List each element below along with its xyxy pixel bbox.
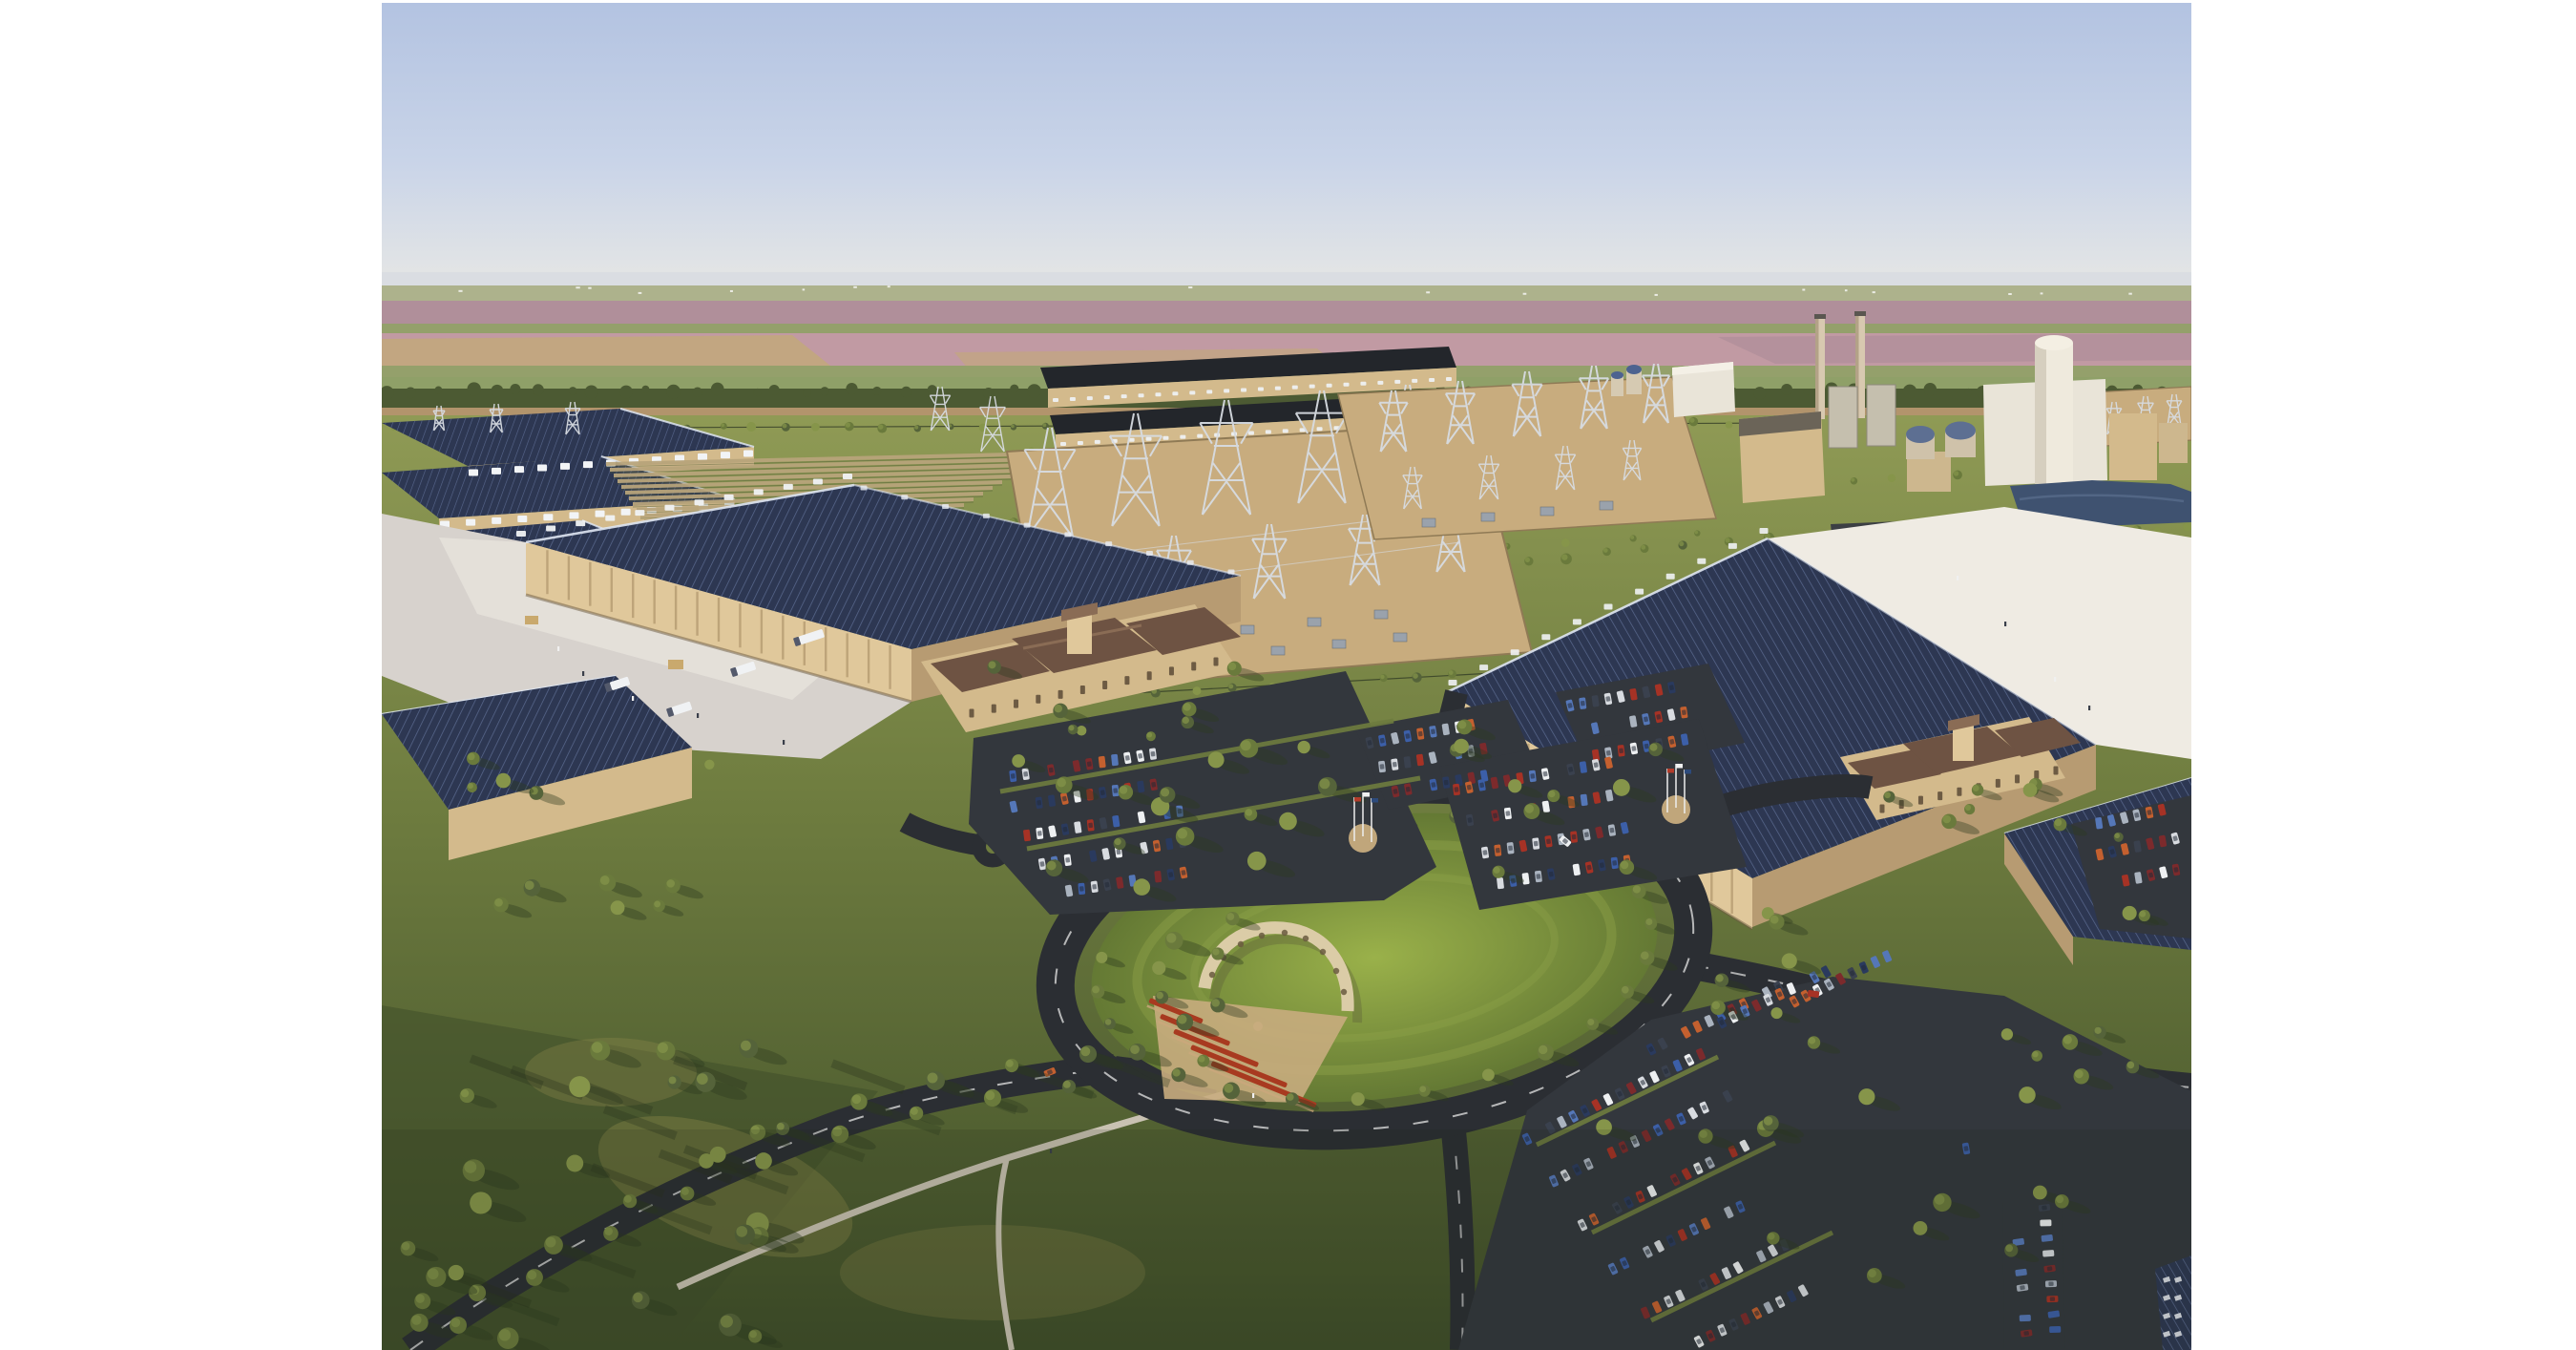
arch — [1880, 805, 1885, 813]
tree-highlight — [852, 1095, 862, 1105]
car-glass — [1049, 768, 1054, 773]
car-glass — [1168, 872, 1173, 877]
dock-trailer — [1604, 604, 1613, 610]
equipment-unit — [1172, 391, 1178, 395]
tree-highlight — [1561, 554, 1567, 559]
car-glass — [1444, 780, 1449, 786]
car-glass — [1150, 751, 1155, 757]
stack-cap — [1814, 314, 1826, 319]
tree-highlight — [1771, 1008, 1778, 1015]
car-glass — [1546, 838, 1551, 844]
arch — [992, 705, 996, 713]
car-glass — [1479, 782, 1484, 788]
treeline-tree — [666, 385, 681, 399]
car-glass — [1088, 823, 1093, 829]
equipment-unit — [1060, 442, 1066, 446]
car-glass — [1682, 709, 1686, 715]
colonnade-arch — [1259, 933, 1265, 939]
car-glass — [1023, 771, 1028, 777]
colonnade-arch — [1209, 972, 1215, 978]
boiler-structure — [1829, 387, 1857, 448]
flag — [1363, 792, 1370, 797]
rooftop-unit — [492, 517, 501, 524]
tree-highlight — [461, 1089, 469, 1097]
treeline-tree — [510, 384, 520, 394]
roof-unit — [861, 486, 868, 491]
arch — [1124, 676, 1129, 685]
tree-highlight — [1228, 663, 1236, 670]
equipment-unit — [1360, 382, 1366, 386]
car-glass — [1534, 841, 1539, 847]
dock-trailer — [784, 484, 793, 490]
tree-highlight — [1641, 545, 1645, 550]
car — [1111, 754, 1119, 767]
field-patch — [382, 335, 830, 369]
person — [2088, 706, 2090, 710]
flag — [1667, 769, 1674, 773]
person — [1957, 576, 1958, 580]
treeline-tree — [467, 382, 480, 395]
tree-highlight — [1725, 538, 1729, 542]
treeline-tree — [585, 385, 598, 398]
dock-trailer — [695, 499, 704, 505]
tree-highlight — [2021, 1087, 2030, 1097]
car-glass — [1405, 733, 1410, 739]
tree-highlight — [1042, 423, 1046, 427]
tree-highlight — [1097, 953, 1103, 960]
car-glass — [1393, 762, 1397, 768]
dock-trailer — [1728, 543, 1737, 549]
tree-highlight — [1209, 753, 1218, 762]
treeline-tree — [492, 385, 504, 397]
tree-highlight — [741, 1041, 751, 1051]
field-patch — [1718, 333, 2191, 364]
equipment-unit — [1248, 431, 1254, 434]
equipment-unit — [1266, 430, 1271, 433]
dock-trailer — [1697, 559, 1706, 564]
person — [582, 671, 584, 676]
rooftop-unit — [621, 509, 631, 516]
tree-highlight — [1055, 705, 1063, 713]
equipment-unit — [1258, 388, 1264, 391]
tree-highlight — [783, 424, 787, 429]
roof-unit — [1105, 541, 1112, 546]
treeline-tree — [380, 386, 394, 400]
treeline-tree — [1924, 383, 1937, 396]
arch — [1102, 681, 1107, 689]
distant-building — [2008, 293, 2012, 295]
tree-highlight — [1525, 558, 1530, 562]
car-glass — [1609, 828, 1614, 833]
tree-highlight — [1006, 1060, 1014, 1067]
car-glass — [1037, 831, 1042, 836]
car-glass — [1380, 738, 1385, 744]
tree-highlight — [1458, 721, 1467, 729]
tree-highlight — [1248, 853, 1259, 863]
distant-building — [639, 292, 642, 294]
equipment-unit — [1309, 385, 1315, 389]
tree-highlight — [1764, 1116, 1772, 1125]
equipment-unit — [1197, 434, 1203, 438]
rooftop-unit — [569, 512, 578, 518]
roof-unit — [1187, 560, 1194, 565]
rooftop-unit — [698, 454, 707, 460]
treeline-tree — [711, 383, 724, 396]
tower-top — [2035, 335, 2073, 350]
treeline-tree — [1781, 384, 1792, 395]
car-glass — [1606, 750, 1611, 756]
tree-highlight — [2055, 819, 2063, 827]
tree-highlight — [612, 901, 619, 909]
car-glass — [1455, 787, 1459, 792]
plant-annex — [2109, 413, 2157, 480]
tree-highlight — [914, 426, 918, 430]
distant-building — [1426, 291, 1430, 293]
car — [1154, 871, 1162, 883]
treeline-tree — [405, 388, 416, 399]
tree-highlight — [497, 774, 506, 783]
treeline-tree — [569, 387, 577, 395]
car-glass — [1116, 849, 1120, 854]
transformer — [1600, 501, 1613, 510]
tree-highlight — [1013, 755, 1020, 763]
tree-highlight — [1152, 798, 1162, 809]
tank-dome — [1906, 426, 1935, 443]
arch — [2054, 767, 2059, 775]
tree-highlight — [911, 1107, 918, 1115]
car-glass — [1467, 817, 1472, 823]
tower-shade — [2035, 343, 2046, 484]
equipment-unit — [1070, 397, 1076, 401]
tree-highlight — [1080, 1046, 1090, 1056]
colonnade-arch — [1333, 968, 1339, 974]
colonnade-arch — [1282, 930, 1288, 936]
tree-highlight — [812, 424, 817, 429]
car-glass — [1154, 843, 1159, 849]
car-glass — [1039, 861, 1044, 867]
tree-highlight — [494, 898, 503, 907]
treeline-tree — [1903, 385, 1916, 398]
tree-highlight — [1319, 778, 1330, 789]
distant-building — [1655, 294, 1658, 296]
car-glass — [1431, 782, 1435, 788]
field-band — [382, 285, 2191, 303]
rooftop-unit — [560, 463, 570, 470]
equipment-unit — [1224, 389, 1229, 392]
distant-building — [1845, 289, 1848, 291]
equipment-unit — [1344, 383, 1350, 387]
dock-trailer — [813, 478, 823, 484]
tree-highlight — [1115, 838, 1121, 845]
tree-highlight — [1011, 425, 1015, 429]
colonnade-arch — [1320, 949, 1326, 955]
tree-highlight — [1380, 675, 1384, 679]
tree-highlight — [1183, 717, 1189, 724]
roof-unit — [1228, 570, 1235, 575]
treeline-tree — [951, 389, 959, 397]
tree-highlight — [1287, 1093, 1294, 1101]
boiler-structure — [1867, 385, 1895, 446]
equipment-unit — [1121, 394, 1127, 398]
car-glass — [1584, 832, 1589, 837]
transformer — [1540, 507, 1554, 516]
equipment-unit — [1078, 441, 1083, 445]
roof-unit — [1024, 523, 1031, 528]
tree-highlight — [1455, 740, 1463, 749]
tree-highlight — [1645, 918, 1652, 925]
distant-building — [1523, 293, 1527, 295]
car-glass — [1572, 834, 1577, 840]
person — [1252, 1093, 1254, 1098]
tree-highlight — [1281, 813, 1290, 823]
tree-highlight — [468, 753, 474, 760]
field-band — [382, 301, 2191, 326]
tree-highlight — [2024, 784, 2032, 791]
equipment-unit — [1275, 387, 1281, 390]
transformer — [1393, 633, 1407, 642]
tree-highlight — [1509, 780, 1517, 788]
car-glass — [1113, 788, 1118, 793]
dock-trailer — [576, 520, 585, 526]
car-glass — [1037, 800, 1041, 806]
tree-highlight — [1942, 815, 1951, 824]
tree-highlight — [985, 1090, 995, 1100]
car — [1581, 794, 1588, 807]
tree-highlight — [1156, 992, 1163, 1000]
tree-highlight — [1633, 885, 1641, 893]
car-glass — [1482, 850, 1487, 855]
dock-trailer — [664, 505, 674, 511]
treeline-tree — [901, 387, 911, 397]
tree-highlight — [1630, 536, 1634, 539]
tree-highlight — [1539, 1045, 1547, 1054]
arch — [1957, 788, 1961, 796]
distant-building — [2041, 292, 2043, 294]
rooftop-unit — [492, 468, 501, 475]
rooftop-unit — [596, 511, 605, 517]
tree-highlight — [571, 1078, 582, 1089]
dock-trailer — [1760, 528, 1769, 534]
tree-highlight — [1241, 740, 1251, 750]
person — [2054, 677, 2056, 682]
tree-highlight — [525, 880, 534, 890]
transformer — [1481, 513, 1495, 521]
tree-highlight — [1689, 418, 1694, 423]
rooftop-unit — [469, 470, 478, 476]
tree-highlight — [1965, 805, 1971, 811]
tree-highlight — [1047, 861, 1057, 871]
treeline-tree — [1965, 389, 1973, 396]
car-glass — [1092, 884, 1097, 890]
dock-trailer — [1635, 589, 1644, 595]
arch — [1937, 791, 1942, 800]
arch — [2034, 770, 2039, 779]
equipment-unit — [1104, 395, 1110, 399]
car-glass — [1062, 827, 1067, 833]
distant-building — [588, 287, 591, 289]
tree-highlight — [600, 875, 610, 885]
flag — [1354, 797, 1361, 802]
person — [557, 646, 559, 651]
distant-building — [888, 285, 890, 287]
tree-highlight — [1614, 780, 1623, 790]
tree-highlight — [1413, 673, 1418, 679]
monument-centerpiece — [1253, 1022, 1263, 1031]
arch — [1169, 666, 1174, 675]
tree-highlight — [654, 900, 660, 907]
tree-highlight — [1763, 908, 1770, 915]
person — [783, 740, 785, 745]
tree-highlight — [2155, 527, 2158, 530]
tree-highlight — [1587, 1019, 1594, 1025]
car-glass — [1536, 874, 1540, 879]
car-glass — [1418, 731, 1423, 737]
car-glass — [1612, 860, 1617, 866]
person — [697, 713, 699, 718]
stack-cap — [1854, 311, 1866, 316]
distant-building — [1802, 289, 1805, 291]
tree-highlight — [1770, 916, 1779, 924]
arch — [1014, 700, 1018, 708]
transformer — [1271, 646, 1285, 655]
car-glass — [1505, 811, 1510, 816]
aerial-campus-rendering: Aerial rendering of a large industrial c… — [0, 0, 2576, 1350]
tree-highlight — [1092, 986, 1100, 994]
treeline-tree — [846, 383, 857, 394]
tree-highlight — [2127, 1062, 2134, 1068]
tree-highlight — [1493, 867, 1499, 874]
treeline-tree — [753, 389, 761, 396]
rooftop-unit — [721, 452, 730, 458]
transformer — [1422, 518, 1435, 527]
tree-highlight — [1212, 948, 1219, 955]
tree-highlight — [1712, 1002, 1721, 1010]
tree-highlight — [592, 1042, 603, 1053]
tree-highlight — [1166, 933, 1176, 942]
tree-highlight — [669, 1076, 677, 1084]
tree-highlight — [2140, 911, 2147, 918]
equipment-unit — [1283, 429, 1288, 432]
crate — [525, 616, 538, 624]
white-admin-building — [1672, 362, 1735, 417]
treeline-tree — [693, 388, 702, 397]
dock-trailer — [843, 474, 852, 479]
treeline-tree — [803, 389, 811, 397]
arch — [1918, 796, 1923, 805]
car-glass — [1151, 782, 1156, 788]
distant-building — [853, 286, 857, 288]
equipment-unit — [1412, 379, 1417, 383]
dock-trailer — [1541, 634, 1550, 640]
rooftop-unit — [543, 514, 553, 520]
car-glass — [1496, 848, 1500, 854]
distant-building — [458, 290, 462, 292]
treeline-tree — [1010, 385, 1018, 393]
rooftop-unit — [466, 519, 475, 526]
tree-highlight — [1649, 744, 1657, 751]
car-glass — [1431, 728, 1435, 734]
dock-trailer — [605, 516, 615, 521]
tree-highlight — [1483, 1069, 1490, 1076]
dock-trailer — [1511, 649, 1519, 655]
tree-highlight — [1063, 1081, 1071, 1088]
dock-trailer — [546, 526, 555, 532]
equipment-unit — [1053, 398, 1058, 402]
equipment-unit — [1087, 396, 1093, 400]
arch — [970, 709, 974, 718]
distant-building — [2128, 293, 2131, 295]
stack-shade — [1815, 318, 1819, 419]
tree-highlight — [705, 760, 711, 766]
tree-highlight — [1211, 999, 1219, 1006]
distant-building — [1188, 286, 1192, 288]
arch — [1058, 690, 1063, 699]
treeline-tree — [821, 387, 829, 395]
tree-highlight — [1105, 1019, 1112, 1025]
tree-highlight — [1695, 531, 1698, 534]
tree-highlight — [468, 783, 473, 789]
tree-highlight — [2124, 907, 2131, 915]
transformer — [1374, 610, 1388, 619]
car-glass — [1380, 764, 1385, 770]
tree-highlight — [2032, 1051, 2038, 1057]
roof-unit — [1146, 551, 1153, 556]
tree-highlight — [1298, 742, 1305, 749]
equipment-unit — [1180, 435, 1185, 439]
flag — [1676, 764, 1683, 769]
treeline-tree — [928, 385, 937, 394]
tree-highlight — [1193, 687, 1198, 692]
tree-highlight — [878, 424, 883, 429]
equipment-unit — [1189, 390, 1195, 394]
tree-highlight — [846, 423, 850, 428]
equipment-unit — [1292, 386, 1298, 390]
treeline-tree — [434, 387, 442, 394]
tree-highlight — [1622, 986, 1629, 994]
tree-highlight — [2063, 1035, 2072, 1044]
arch — [1147, 671, 1152, 680]
car — [1497, 877, 1504, 890]
arch — [1080, 686, 1085, 694]
person — [632, 696, 634, 701]
equipment-unit — [1327, 384, 1332, 388]
tree-highlight — [1598, 1121, 1606, 1129]
tree-highlight — [1809, 1037, 1815, 1044]
sky — [382, 3, 2191, 291]
tree-highlight — [1888, 475, 1893, 479]
dock-trailer — [1573, 619, 1581, 624]
treeline-tree — [641, 386, 649, 393]
equipment-unit — [1162, 436, 1168, 440]
equipment-unit — [1317, 427, 1323, 431]
tree-highlight — [1177, 829, 1187, 839]
treeline-tree — [619, 386, 633, 399]
car-glass — [1065, 857, 1070, 863]
car-glass — [2173, 867, 2178, 873]
tree-highlight — [1153, 962, 1161, 970]
tree-highlight — [1973, 785, 1979, 791]
tree-highlight — [1548, 791, 1555, 797]
car-glass — [1581, 701, 1585, 707]
dock-trailer — [754, 489, 764, 495]
person — [2004, 622, 2006, 626]
tree-highlight — [1183, 703, 1190, 710]
tree-highlight — [1078, 727, 1083, 732]
equipment-unit — [1139, 393, 1144, 397]
treeline-tree — [769, 385, 780, 395]
transformer — [1308, 618, 1321, 626]
tree-highlight — [658, 1043, 668, 1053]
